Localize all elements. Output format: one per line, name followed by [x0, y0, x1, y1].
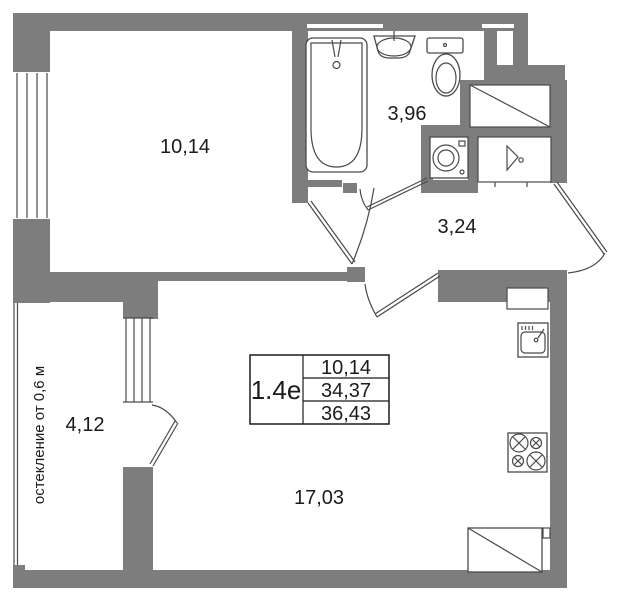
living-room-door-arc: [365, 284, 377, 317]
wall-top: [13, 13, 528, 31]
wall-right-upper: [550, 80, 567, 183]
bathroom-door: [360, 178, 428, 210]
table-total-area: 36,43: [321, 403, 371, 425]
wall-balcony-lower: [123, 467, 153, 588]
floor-plan: 1.4е 10,14 34,37 36,43 10,14 3,96 3,24 4…: [0, 0, 627, 600]
unit-label: 1.4е: [251, 375, 302, 405]
shaft-slot: [497, 31, 513, 65]
living-room-door: [365, 273, 440, 317]
room-label-bedroom: 10,14: [160, 136, 210, 158]
table-apartment-area: 34,37: [321, 380, 371, 402]
bathtub-icon: [306, 38, 367, 172]
vent-shaft-icon: [470, 85, 550, 127]
kitchen-sink-icon: [518, 323, 548, 357]
floor-plan-drawing: 1.4е 10,14 34,37 36,43 10,14 3,96 3,24 4…: [0, 0, 627, 600]
top-wall-window-marker-2: [482, 24, 514, 28]
balcony-door: [150, 405, 178, 466]
bedroom-door-arc: [352, 188, 374, 264]
wall-bedroom-bottom: [13, 272, 152, 302]
refrigerator-icon: [468, 528, 542, 572]
valve-room-box: [478, 137, 551, 182]
wall-door-post: [347, 267, 365, 282]
washing-machine-icon: [430, 137, 468, 178]
wall-balcony-bottom-block: [13, 565, 25, 588]
bathroom-door-arc: [360, 189, 368, 210]
wall-balcony-window-top: [123, 302, 153, 318]
stove-icon: [508, 433, 547, 472]
wall-hall-living-divider: [150, 272, 347, 281]
wall-top-left-block: [13, 13, 50, 72]
top-wall-window-marker: [307, 24, 383, 28]
glazing-note: остекление от 0,6 м: [31, 366, 48, 504]
valve-room: [478, 137, 551, 187]
area-table: 1.4е 10,14 34,37 36,43: [250, 355, 389, 425]
wall-notch: [543, 528, 550, 538]
toilet-icon: [427, 38, 463, 96]
wall-bathroom-bottom: [296, 180, 342, 187]
wall-bathroom-door-post: [343, 183, 357, 193]
room-label-hallway: 3,24: [438, 216, 477, 238]
washbasin-icon: [374, 31, 415, 58]
entrance-door: [554, 182, 607, 273]
table-living-area: 10,14: [321, 357, 371, 379]
wall-top-right-step: [497, 65, 565, 80]
balcony-door-arc: [152, 405, 177, 423]
balcony-glazing: [14, 303, 18, 565]
wall-niche: [507, 288, 548, 309]
wall-right-lower: [550, 273, 567, 588]
room-labels: 10,14 3,96 3,24 4,12 17,03 остекление от…: [31, 103, 476, 509]
room-label-bathroom: 3,96: [388, 103, 427, 125]
bedroom-door: [308, 188, 374, 264]
room-label-balcony: 4,12: [66, 414, 105, 436]
wall-bottom: [13, 570, 567, 588]
wall-bath-right-1: [484, 31, 497, 80]
bedroom-window: [17, 73, 47, 218]
wall-balcony-top-block: [13, 280, 25, 303]
balcony-window: [123, 318, 153, 402]
entrance-door-arc: [568, 253, 605, 273]
room-label-living-kitchen: 17,03: [294, 487, 344, 509]
